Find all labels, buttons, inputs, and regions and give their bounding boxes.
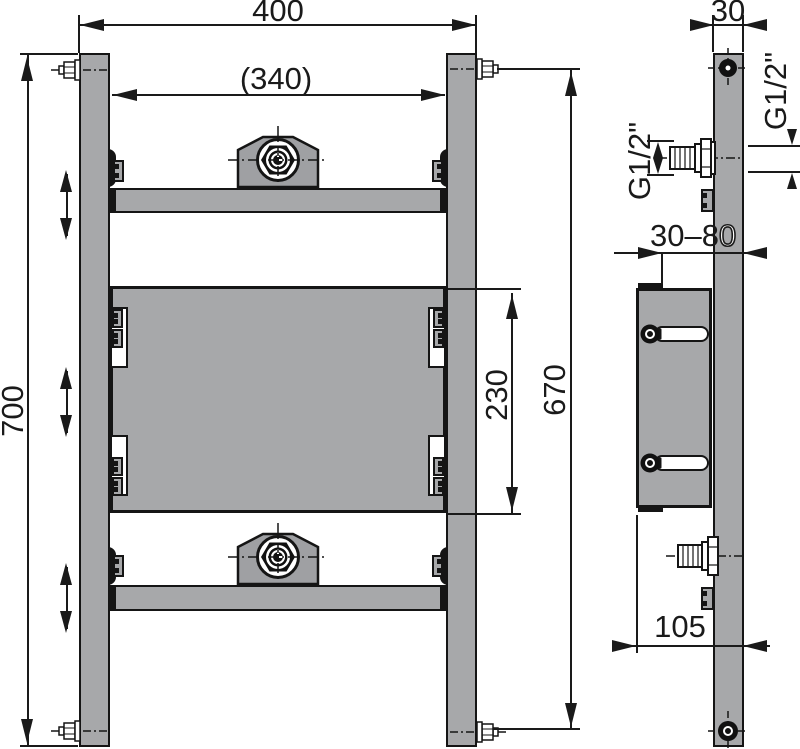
adjust-arrow-down <box>60 611 72 633</box>
plate-clip <box>433 457 444 476</box>
crossbar-endcap <box>440 188 446 213</box>
rail-right <box>446 53 477 747</box>
arrowhead <box>787 173 797 189</box>
arrowhead <box>743 247 767 259</box>
adjust-arrow-down <box>60 218 72 240</box>
crossbar-endcap <box>440 585 446 611</box>
extension-line <box>636 515 638 653</box>
arrowhead <box>21 57 33 81</box>
rail-hole-top <box>706 46 750 90</box>
arrowhead <box>787 129 797 145</box>
dim-label-base-depth: 105 <box>640 611 720 642</box>
tick-line <box>647 174 674 176</box>
arrowhead <box>653 158 663 174</box>
anchor-bolt-bottom-right <box>448 720 506 744</box>
crossbar-top <box>108 188 448 213</box>
plate-clip <box>112 477 123 496</box>
dim-label-overall-height: 700 <box>0 351 30 471</box>
extension-line <box>497 68 580 70</box>
dim-label-profile-depth: 30 <box>688 0 768 26</box>
technical-drawing: 400 (340) 30 700 670 230 <box>0 0 800 749</box>
slot-screw-lower <box>636 449 716 477</box>
plate-clip <box>112 309 123 328</box>
arrowhead <box>421 89 445 101</box>
adjust-arrow-up <box>60 367 72 389</box>
crossbar-endcap <box>110 585 116 611</box>
rail-clip <box>432 160 443 182</box>
water-fitting-bottom <box>228 523 328 585</box>
extension-line <box>493 728 580 730</box>
anchor-bolt-bottom-left <box>51 719 109 743</box>
water-fitting-top <box>228 126 328 188</box>
arrowhead <box>612 640 636 652</box>
dim-label-bolt-span: 670 <box>538 330 572 450</box>
arrowhead <box>80 19 104 31</box>
dim-label-inner-width: (340) <box>216 63 336 94</box>
slot-screw-upper <box>636 320 716 348</box>
crossbar-side-tab <box>701 189 714 212</box>
plate-clip <box>112 329 123 348</box>
arrowhead <box>452 19 476 31</box>
threaded-connection-bottom <box>666 533 746 579</box>
extension-line <box>448 513 521 515</box>
arrowhead <box>506 295 518 319</box>
rail-clip <box>113 160 124 182</box>
arrowhead <box>565 703 577 727</box>
dim-label-plate-height: 230 <box>480 335 514 455</box>
arrowhead <box>21 719 33 743</box>
wall-distance-main: 30–8 <box>650 218 719 253</box>
adjust-arrow-up <box>60 563 72 585</box>
mounting-plate <box>110 286 446 513</box>
tick-line <box>748 145 800 147</box>
dim-label-overall-width: 400 <box>218 0 338 26</box>
plate-clip <box>433 309 444 328</box>
dim-label-thread-left: G1/2" <box>623 101 657 221</box>
rail-hole-bottom <box>706 709 750 749</box>
crossbar-side-tab <box>701 587 714 610</box>
anchor-bolt-top-left <box>51 58 109 82</box>
arrowhead <box>653 142 663 158</box>
arrowhead <box>743 640 767 652</box>
crossbar-endcap <box>110 188 116 213</box>
box-tab-top <box>638 283 663 289</box>
rail-clip <box>432 555 443 577</box>
adjust-arrow-down <box>60 415 72 437</box>
dim-label-wall-distance: 30–80 <box>650 220 736 251</box>
plate-clip <box>112 457 123 476</box>
arrowhead <box>113 89 137 101</box>
arrowhead <box>506 487 518 511</box>
extension-line <box>448 288 521 290</box>
plate-clip <box>433 477 444 496</box>
plate-clip <box>433 329 444 348</box>
crossbar-bottom <box>108 585 448 611</box>
rail-clip <box>113 555 124 577</box>
arrowhead <box>565 72 577 96</box>
rail-left <box>79 53 110 747</box>
wall-distance-overlap-digit: 0 <box>719 218 736 253</box>
box-tab-bottom <box>638 506 663 512</box>
adjust-arrow-up <box>60 170 72 192</box>
